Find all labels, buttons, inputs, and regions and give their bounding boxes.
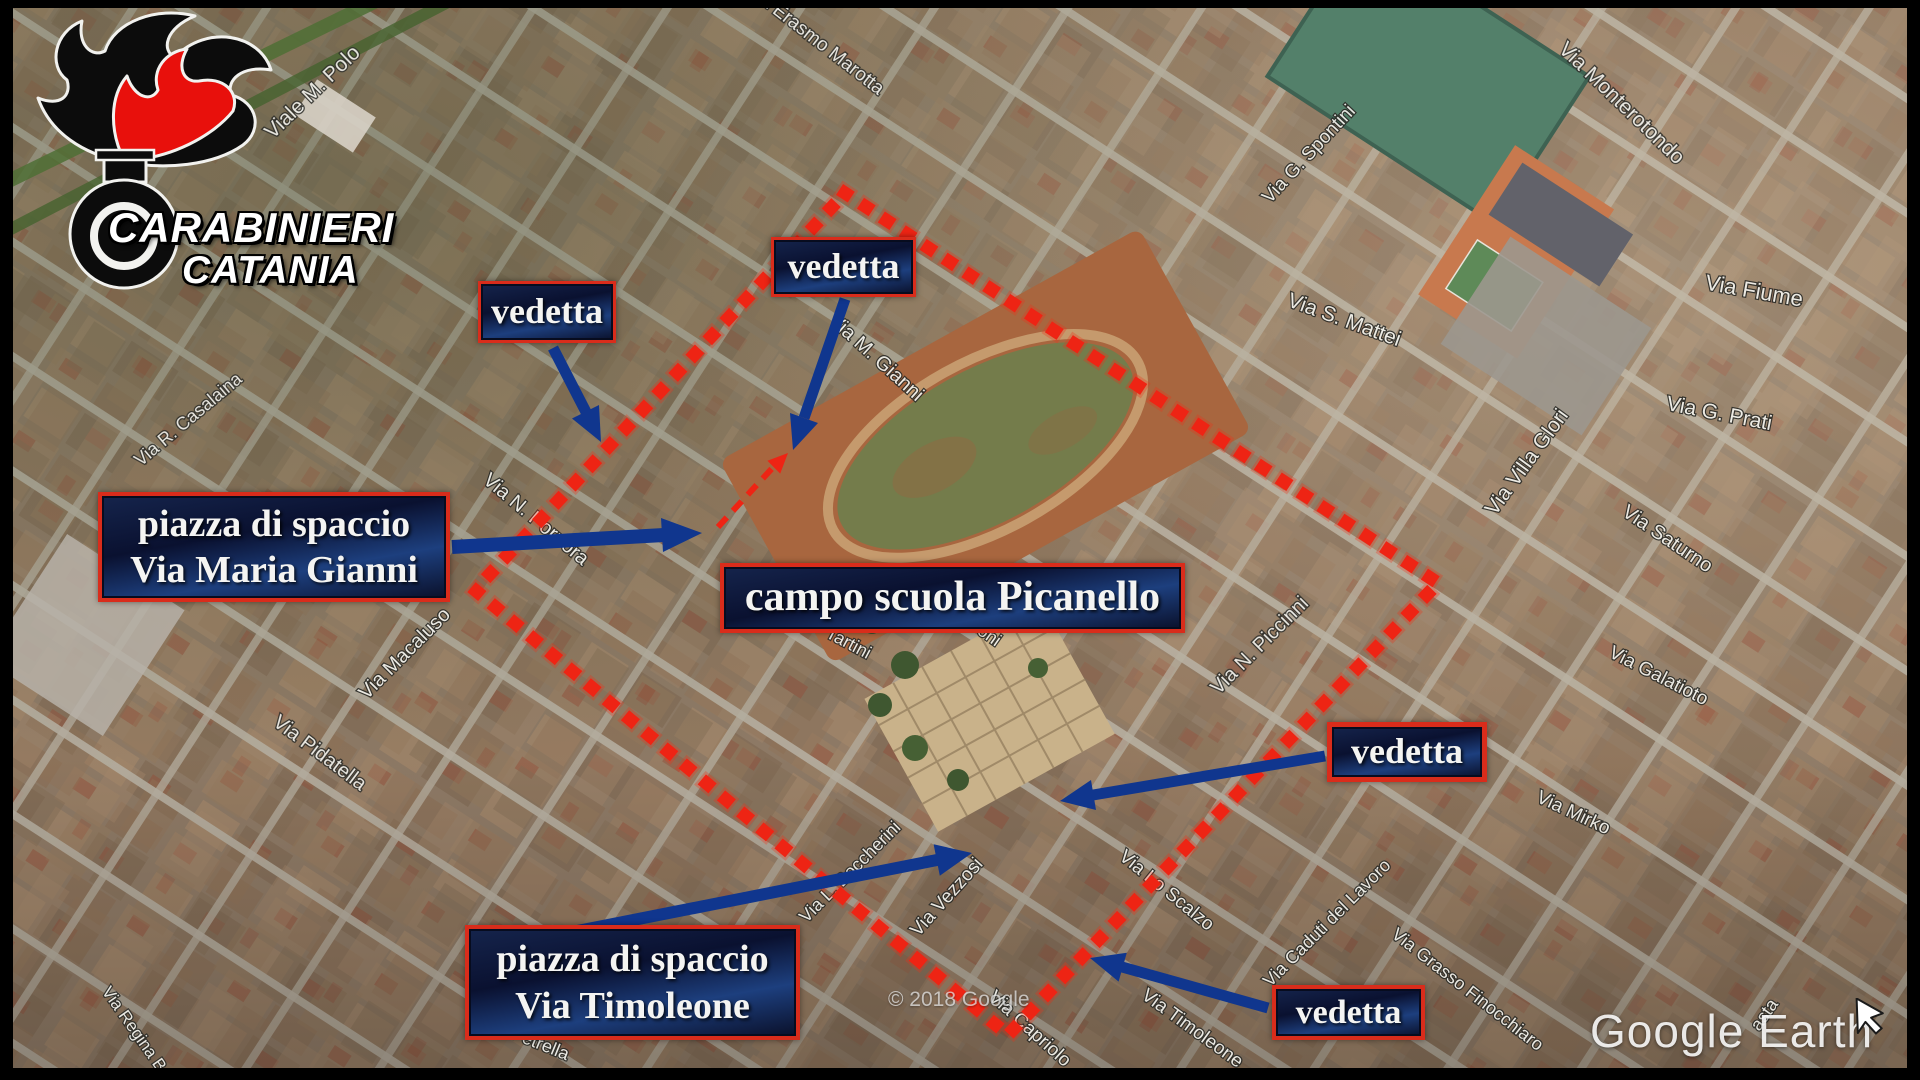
dealing-square-timoleone-line2: Via Timoleone [515,983,750,1029]
dealing-square-timoleone-badge: piazza di spaccio Via Timoleone [465,925,800,1040]
google-earth-watermark: Google Earth [1590,1004,1873,1058]
lookout-badge-3: vedetta [1327,722,1487,782]
lookout-badge-4: vedetta [1272,985,1425,1040]
dealing-square-timoleone-line1: piazza di spaccio [496,936,768,982]
copyright-watermark: © 2018 Google [888,988,1030,1012]
org-city: CATANIA [182,249,359,293]
org-name: CARABINIERI [108,204,394,252]
frame-bar-left [0,0,13,1080]
mouse-cursor-icon [1846,998,1886,1046]
field-badge: campo scuola Picanello [720,563,1185,633]
dealing-square-gianni-line2: Via Maria Gianni [130,547,418,593]
dealing-square-gianni-badge: piazza di spaccio Via Maria Gianni [98,492,450,602]
frame-bar-top [0,0,1920,8]
google-earth-frame: Via Erasmo Marotta Viale M. Polo Via Mon… [0,0,1920,1080]
frame-bar-right [1907,0,1920,1080]
lookout-badge-1: vedetta [478,281,616,343]
lookout-badge-2: vedetta [771,237,916,297]
frame-bar-bottom [0,1068,1920,1080]
dealing-square-gianni-line1: piazza di spaccio [138,501,410,547]
